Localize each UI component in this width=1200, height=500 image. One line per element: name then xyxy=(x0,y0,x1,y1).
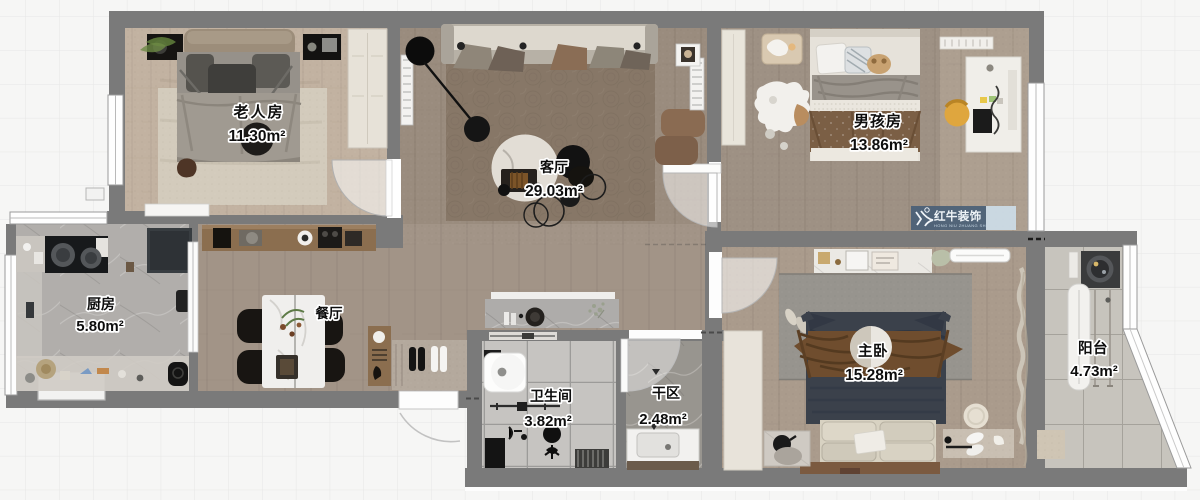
svg-text:13.86m²: 13.86m² xyxy=(850,137,908,154)
svg-text:5.80m²: 5.80m² xyxy=(76,318,124,335)
svg-text:客厅: 客厅 xyxy=(539,159,568,175)
svg-text:男孩房: 男孩房 xyxy=(854,112,902,130)
svg-text:餐厅: 餐厅 xyxy=(315,305,343,321)
svg-text:HONG NIU ZHUANG SHI: HONG NIU ZHUANG SHI xyxy=(934,223,987,228)
svg-text:11.30m²: 11.30m² xyxy=(229,128,286,145)
svg-text:阳台: 阳台 xyxy=(1078,339,1108,357)
svg-text:29.03m²: 29.03m² xyxy=(525,183,583,200)
svg-text:干区: 干区 xyxy=(652,385,680,401)
svg-text:卫生间: 卫生间 xyxy=(530,388,572,404)
svg-text:15.28m²: 15.28m² xyxy=(845,367,903,384)
svg-text:厨房: 厨房 xyxy=(87,296,115,312)
svg-text:2.48m²: 2.48m² xyxy=(639,411,687,428)
svg-text:主卧: 主卧 xyxy=(858,342,888,360)
svg-text:4.73m²: 4.73m² xyxy=(1070,363,1118,380)
svg-text:红牛装饰: 红牛装饰 xyxy=(934,209,982,223)
svg-text:3.82m²: 3.82m² xyxy=(524,413,572,430)
svg-text:老人房: 老人房 xyxy=(232,103,284,121)
